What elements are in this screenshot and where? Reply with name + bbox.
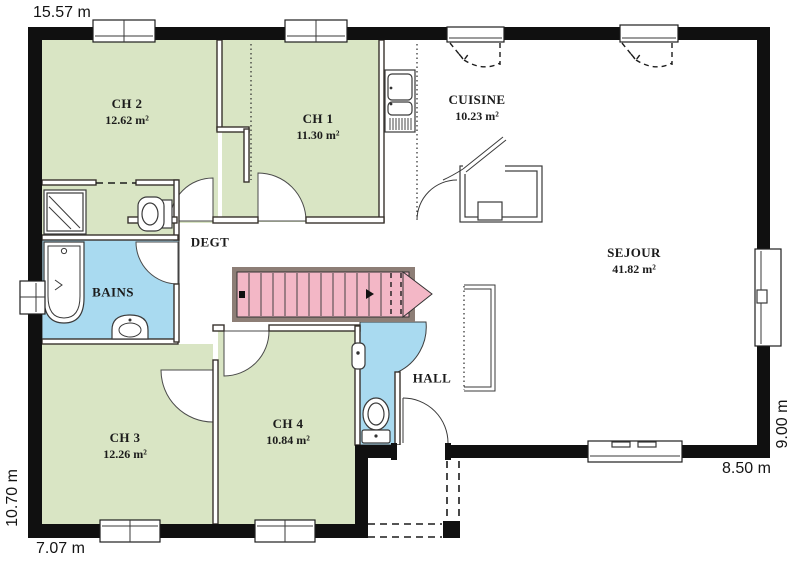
dimension-bottom-right: 8.50 m — [722, 460, 771, 478]
room-name: CH 1 — [297, 111, 340, 128]
window-icon — [93, 20, 155, 42]
room-name: CH 4 — [266, 416, 310, 433]
shower-icon — [44, 190, 86, 234]
pantry-box — [478, 202, 502, 220]
room-name: CH 3 — [103, 430, 147, 447]
room-area: 10.23 m² — [449, 109, 506, 125]
room-name: BAINS — [92, 285, 134, 302]
window-icon — [255, 520, 315, 542]
wc-toilet-icon — [362, 398, 390, 443]
dimension-left: 10.70 m — [4, 469, 22, 527]
room-label-ch3: CH 3 12.26 m² — [103, 430, 147, 462]
room-name: HALL — [413, 371, 451, 388]
room-label-ch4: CH 4 10.84 m² — [266, 416, 310, 448]
door-handle-icon — [352, 343, 365, 369]
room-label-hall: HALL — [413, 371, 451, 388]
staircase-icon — [232, 267, 432, 322]
room-name: CH 2 — [105, 96, 149, 113]
room-area: 12.26 m² — [103, 447, 147, 463]
window-icon — [285, 20, 347, 42]
window-icon — [755, 249, 781, 346]
window-icon — [20, 281, 45, 314]
toilet-icon — [138, 197, 172, 231]
stair-arrow-tip — [403, 272, 432, 317]
kitchen-door-arc — [417, 180, 457, 220]
room-label-bains: BAINS — [92, 285, 134, 302]
washbasin-icon — [112, 315, 148, 339]
dimension-right: 9.00 m — [774, 400, 792, 449]
room-area: 10.84 m² — [266, 433, 310, 449]
room-label-cuisine: CUISINE 10.23 m² — [449, 92, 506, 124]
room-name: CUISINE — [449, 92, 506, 109]
counter-icon — [464, 285, 495, 391]
floor-plan-drawing — [0, 0, 800, 564]
room-area: 11.30 m² — [297, 128, 340, 144]
kitchen-sink-icon — [385, 70, 415, 132]
bathtub-icon — [44, 242, 84, 323]
stair-start-mark — [239, 291, 245, 298]
window-icon — [588, 441, 682, 462]
room-name: SEJOUR — [607, 245, 661, 262]
dimension-bottom-left: 7.07 m — [36, 540, 85, 558]
room-area: 41.82 m² — [607, 262, 661, 278]
room-label-sejour: SEJOUR 41.82 m² — [607, 245, 661, 277]
dimension-top: 15.57 m — [33, 4, 91, 22]
room-name: DEGT — [191, 235, 229, 252]
room-label-degt: DEGT — [191, 235, 229, 252]
window-icon — [100, 520, 160, 542]
room-area: 12.62 m² — [105, 113, 149, 129]
window-swing-symbols — [450, 43, 672, 67]
porch-post — [443, 521, 460, 538]
window-icon — [447, 27, 504, 42]
porch-outline — [368, 461, 460, 538]
room-label-ch2: CH 2 12.62 m² — [105, 96, 149, 128]
window-icon — [620, 25, 678, 42]
floor-plan: CH 2 12.62 m² CH 1 11.30 m² CUISINE 10.2… — [0, 0, 800, 564]
room-label-ch1: CH 1 11.30 m² — [297, 111, 340, 143]
pantry-icon — [443, 137, 542, 222]
